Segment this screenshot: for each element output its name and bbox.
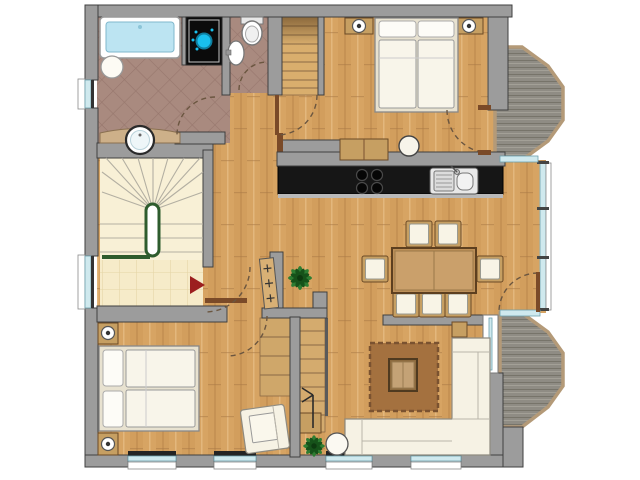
window-left-2	[78, 255, 94, 309]
shower-icon	[186, 17, 222, 65]
wall-bottom-4	[372, 455, 411, 467]
table-lamp-bottom-icon	[102, 438, 115, 451]
dining-table	[392, 248, 476, 293]
wall-bathroom-south	[97, 143, 213, 158]
wall-ne	[488, 17, 508, 110]
wall-se	[490, 373, 503, 455]
kitchen-counter-edge	[278, 194, 503, 198]
side-table	[452, 322, 467, 337]
dining-chair	[393, 291, 419, 317]
balcony-door-jamb-top	[478, 105, 491, 110]
window-bottom-1	[128, 451, 176, 469]
dining-chair	[419, 291, 445, 317]
dining-chair	[362, 256, 388, 282]
balcony-top-door-glass	[500, 156, 538, 162]
stool-icon	[399, 136, 419, 156]
dining-chair	[445, 291, 471, 317]
potted-plant-icon	[288, 266, 312, 290]
wall-stairwell-step	[313, 292, 327, 308]
dining-chair	[435, 221, 461, 247]
stairs-door-leaf	[275, 95, 279, 135]
balcony-bottom	[495, 313, 563, 427]
rug	[370, 343, 438, 411]
stair-base-cabinet	[297, 413, 321, 433]
wall-kitchen-bedroom	[277, 152, 505, 166]
potted-plant-icon	[303, 435, 325, 457]
double-bed-top	[375, 18, 458, 112]
wall-bottom-2	[176, 455, 214, 467]
balcony-door-jamb-bottom	[478, 150, 491, 155]
wall-bedroom2-north	[97, 306, 227, 322]
wall-bathroom-south-step	[175, 132, 225, 144]
round-table-icon	[326, 433, 348, 455]
wall-left-1	[85, 5, 98, 80]
wall-bedroom2-east	[290, 317, 300, 457]
wall-se-corner	[503, 427, 523, 467]
table-lamp-top-icon	[102, 327, 115, 340]
armchair	[240, 404, 290, 454]
stair-rail-edge	[325, 318, 328, 416]
wall-bottom-1	[85, 455, 128, 467]
entry-landing-floor	[100, 260, 203, 309]
wall-left-2	[85, 108, 98, 256]
table-lamp-left-icon	[353, 20, 366, 33]
balcony-bottom-door-glass	[500, 310, 540, 316]
balcony-bottom-door-leaf	[536, 272, 540, 312]
floor-plan-canvas	[0, 0, 640, 480]
dining-chair	[406, 221, 432, 247]
stair-rail	[146, 204, 159, 256]
wall-stairs-bedroom	[318, 17, 324, 95]
staircase-secondary-upper	[282, 17, 318, 95]
coffee-table	[389, 359, 417, 391]
toilet-icon	[241, 17, 263, 45]
wall-stair-east	[203, 150, 213, 267]
wall-wc-east	[268, 17, 282, 95]
kitchen-sink-icon	[430, 165, 478, 194]
dining-chair	[477, 256, 503, 282]
bathtub-icon	[100, 17, 180, 58]
floor-plan	[0, 0, 640, 480]
balcony-bottom-deck	[495, 313, 563, 427]
wall-top	[85, 5, 512, 17]
round-basin-icon	[101, 56, 123, 78]
wall-left-3	[85, 308, 98, 467]
double-bed-bottom	[99, 346, 199, 431]
entry-threshold	[205, 298, 247, 303]
table-lamp-right-icon	[463, 20, 476, 33]
window-left-1	[78, 79, 94, 109]
